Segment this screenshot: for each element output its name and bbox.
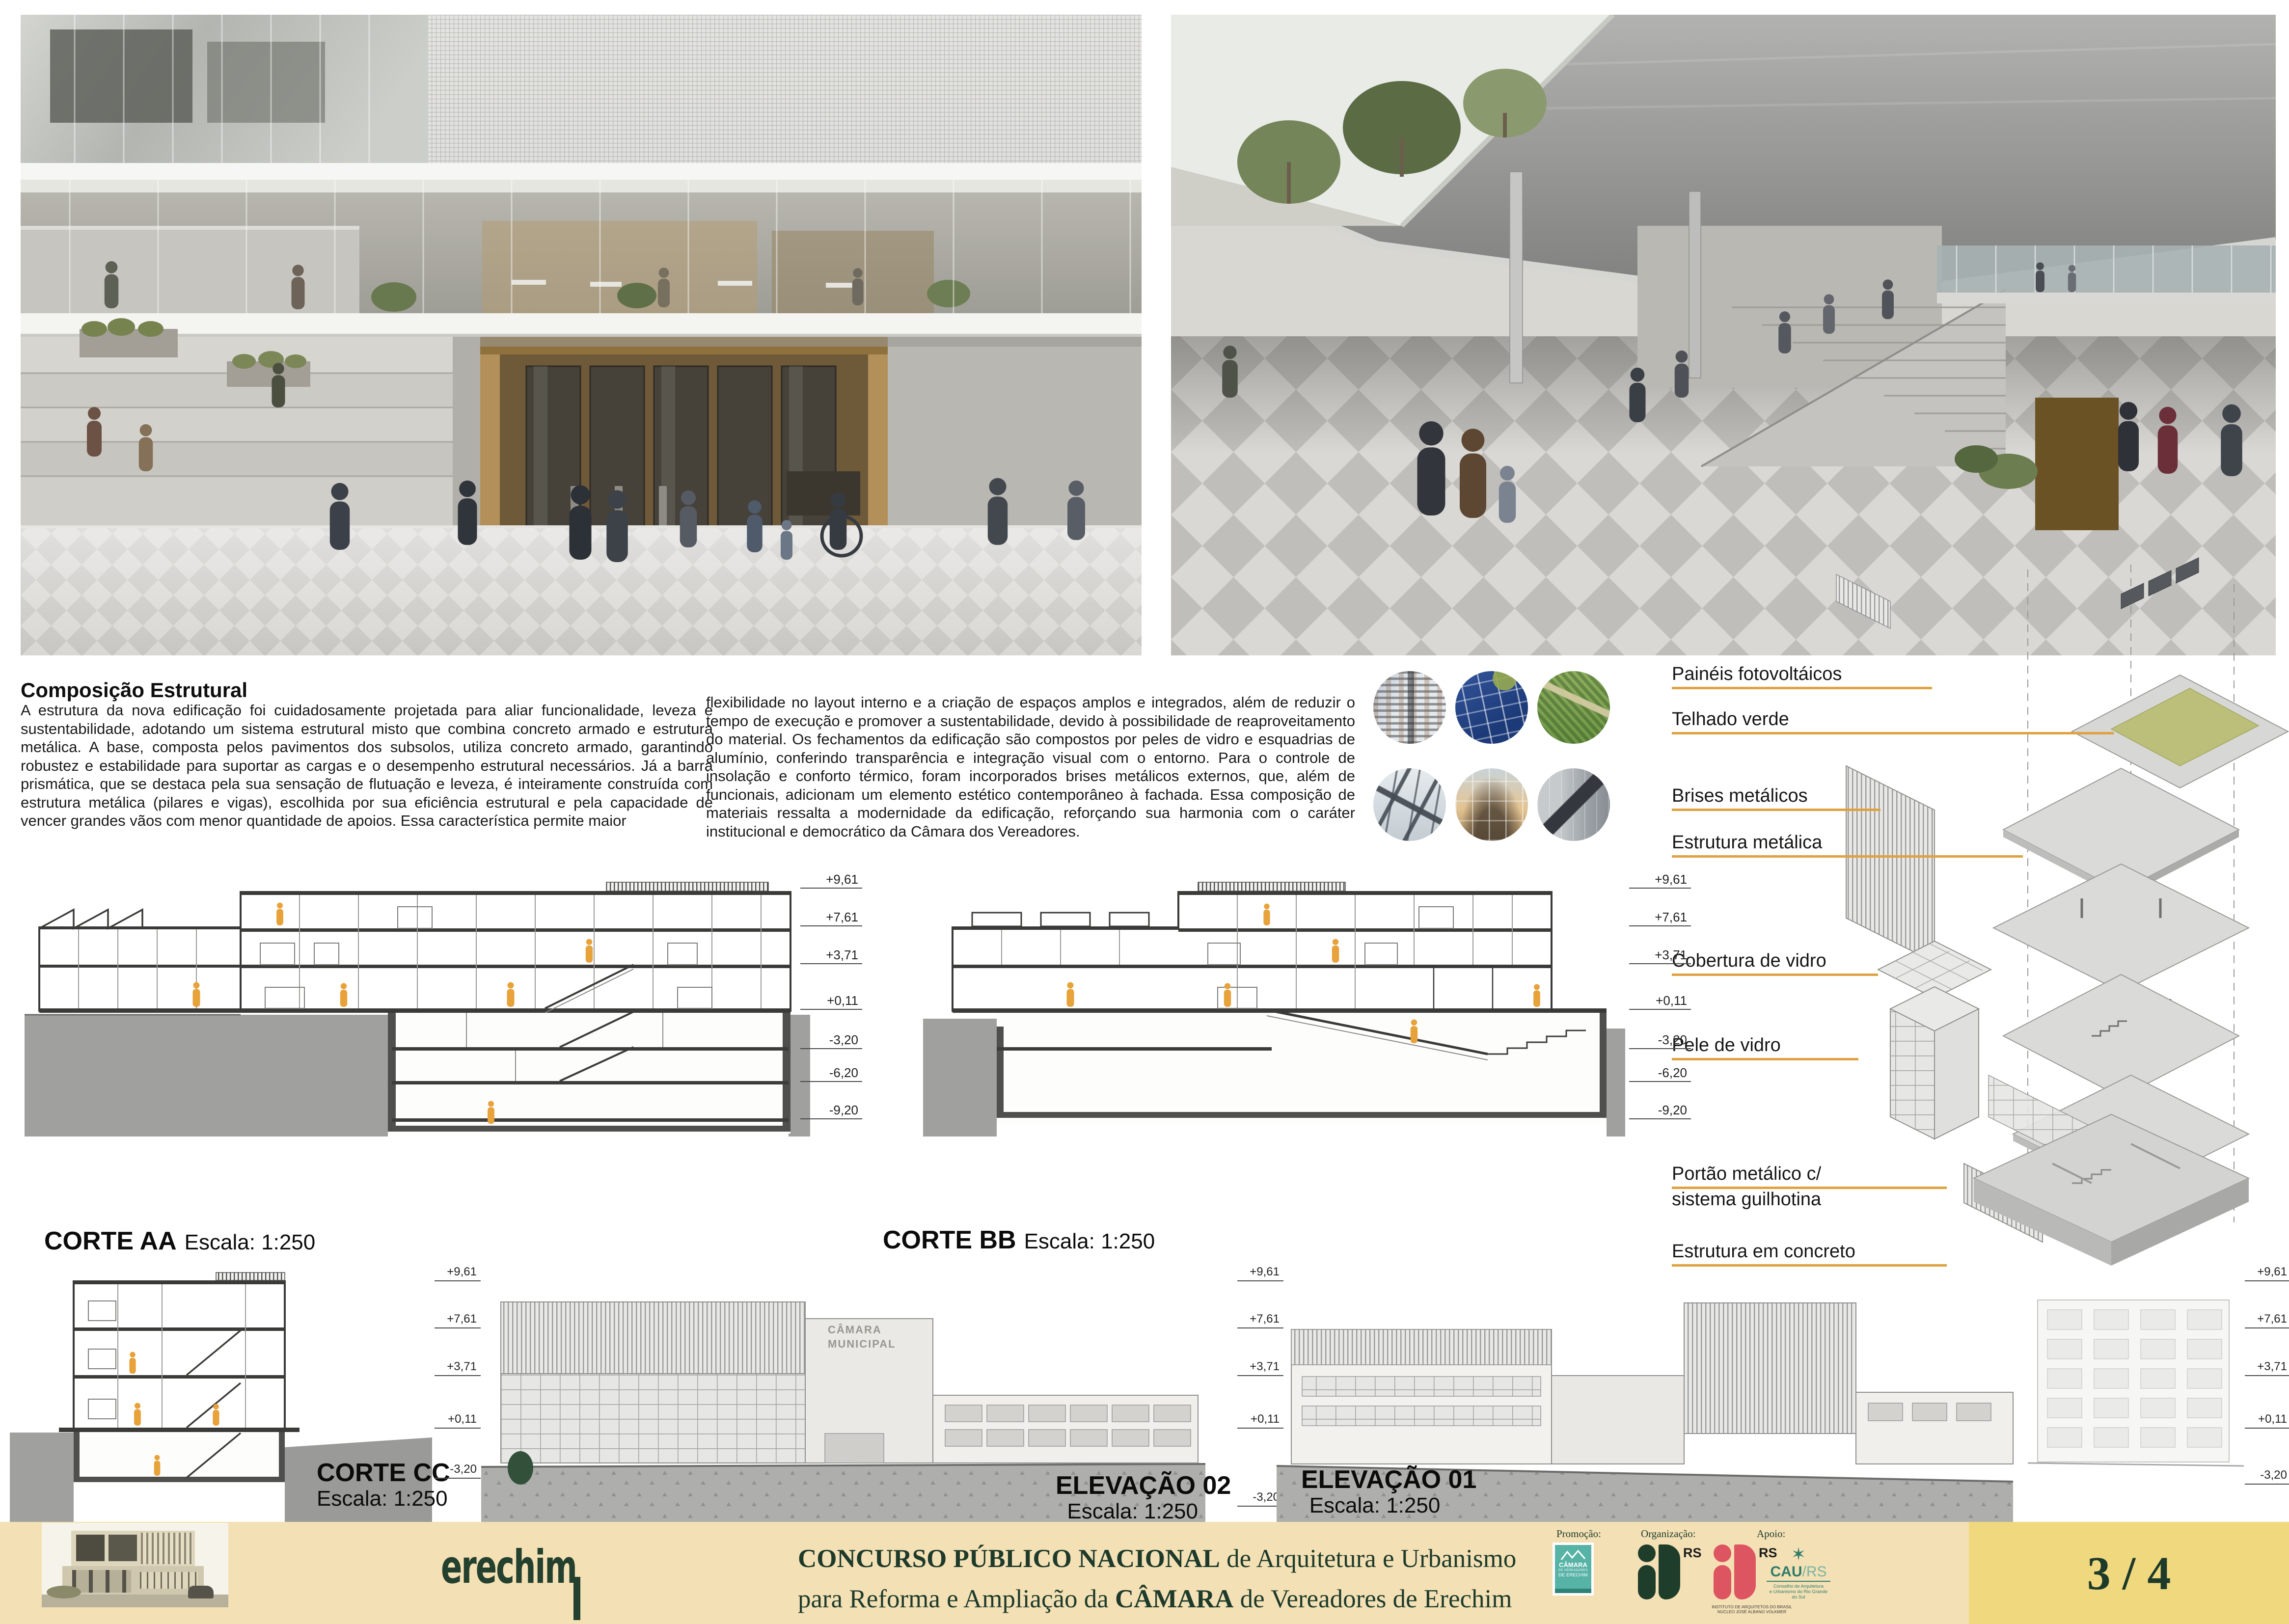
level-mark: -9,20: [1629, 1103, 1691, 1119]
level-mark: +9,61: [435, 1265, 481, 1281]
competition-title: CONCURSO PÚBLICO NACIONAL de Arquitetura…: [798, 1539, 1516, 1619]
axon-label-telhado: Telhado verde: [1672, 709, 2114, 734]
iab-bowl: [1659, 1544, 1680, 1599]
level-mark: +3,71: [2245, 1359, 2289, 1376]
axon-label-text: sistema guilhotina: [1672, 1189, 1947, 1210]
material-photo-metal-mesh-icon: [1373, 671, 1446, 744]
material-photo-concrete-structure-icon: [1537, 768, 1610, 841]
photo-vintage-car: [188, 1586, 214, 1598]
level-mark: +7,61: [800, 910, 862, 926]
material-photo-green-roof-icon: [1537, 671, 1610, 744]
essay-column-1: A estrutura da nova edificação foi cuida…: [21, 701, 713, 830]
competition-board: Composição Estrutural A estrutura da nov…: [0, 0, 2289, 1624]
level-mark: +0,11: [800, 993, 862, 1010]
level-mark: -3,20: [2245, 1468, 2289, 1485]
level-mark: +9,61: [1629, 872, 1691, 889]
mountains-icon: [1559, 1549, 1587, 1561]
corte-aa-title: CORTE AA: [44, 1227, 177, 1255]
material-photo-glass-facade-icon: [1455, 768, 1528, 841]
cau-name: CAU/RS: [1767, 1564, 1830, 1582]
level-mark: -3,20: [800, 1032, 862, 1049]
axon-label-estrutura-metalica: Estrutura metálica: [1672, 832, 2023, 858]
iab-subtitle: INSTITUTO DE ARQUITETOS DO BRASIL NÚCLEO…: [1703, 1604, 1801, 1614]
camara-logo-line2: DE VEREADORES: [1555, 1569, 1591, 1572]
level-mark: -6,20: [1629, 1065, 1691, 1082]
mesh-mullion: [1408, 671, 1414, 744]
corte-cc-label: CORTE CC Escala: 1:250: [317, 1459, 439, 1511]
iab-stem: [1638, 1565, 1656, 1599]
camara-logo-strip: [1555, 1589, 1591, 1593]
photo-fins: [141, 1533, 192, 1564]
photo-vegetation: [47, 1586, 81, 1598]
material-photo-solar-panels-icon: [1455, 671, 1528, 744]
elevacao-02-title: ELEVAÇÃO 02: [1056, 1472, 1198, 1499]
iab-dot: [1638, 1544, 1656, 1562]
corte-cc-scale: Escala: 1:250: [317, 1487, 439, 1511]
camara-logo-line3: DE ERECHIM: [1555, 1572, 1591, 1578]
competition-title-line2: para Reforma e Ampliação da CÂMARA de Ve…: [798, 1579, 1516, 1619]
level-mark: -3,20: [435, 1462, 481, 1479]
level-mark: +3,71: [800, 947, 862, 964]
apoio-label: Apoio:: [1757, 1528, 1785, 1540]
axon-label-text: Portão metálico c/: [1672, 1164, 1947, 1184]
leader-line: [1672, 809, 1880, 811]
leader-line: [1672, 1058, 1858, 1060]
corte-aa-drawing: [25, 881, 810, 1228]
axon-label-text: Estrutura metálica: [1672, 832, 2023, 853]
iab-bowl: [1734, 1544, 1756, 1599]
org-label: Organização:: [1641, 1528, 1696, 1540]
iab-dot: [1714, 1544, 1731, 1562]
leader-line: [1672, 1264, 1947, 1267]
axon-label-text: Brises metálicos: [1672, 785, 1880, 806]
level-mark: +0,11: [1629, 993, 1691, 1010]
photo-ribbon-windows: [140, 1572, 198, 1589]
render-entrance-view: [21, 15, 1142, 655]
axon-label-paineis: Painéis fotovoltáicos: [1672, 664, 1932, 689]
axon-label-portao: Portão metálico c/ sistema guilhotina: [1672, 1164, 1947, 1210]
axon-label-concreto: Estrutura em concreto: [1672, 1241, 1947, 1267]
page-number: 3 / 4: [2087, 1546, 2171, 1600]
essay-heading: Composição Estrutural: [21, 678, 247, 702]
leader-line: [1672, 687, 1932, 689]
axon-label-brises: Brises metálicos: [1672, 785, 1880, 811]
iab-rs-text: RS: [1683, 1545, 1702, 1561]
axon-label-text: Painéis fotovoltáicos: [1672, 664, 1932, 684]
corte-bb-scale: Escala: 1:250: [1024, 1229, 1155, 1253]
level-mark: +0,11: [435, 1412, 481, 1429]
corte-aa-label: CORTE AAEscala: 1:250: [44, 1226, 315, 1256]
level-mark: +7,61: [435, 1312, 481, 1328]
page-number-box: 3 / 4: [1969, 1522, 2289, 1624]
elevacao-01-title: ELEVAÇÃO 01: [1301, 1466, 1448, 1493]
corte-cc-title: CORTE CC: [317, 1459, 439, 1487]
camara-erechim-logo-inner: CÂMARA DE VEREADORES DE ERECHIM: [1555, 1545, 1591, 1593]
erechim-logo-descender: [573, 1577, 580, 1620]
axon-label-text: Cobertura de vidro: [1672, 950, 1878, 971]
level-mark: -9,20: [800, 1103, 862, 1119]
elevacao-01-label: ELEVAÇÃO 01 Escala: 1:250: [1301, 1466, 1448, 1518]
level-mark: -3,20: [1629, 1032, 1691, 1049]
neighbor-building-elevation: [2028, 1275, 2244, 1496]
facade-sign-camara-municipal: CÂMARA MUNICIPAL: [828, 1323, 896, 1351]
photo-pilotis: [72, 1570, 131, 1593]
essay-column-2: flexibilidade no layout interno e a cria…: [706, 693, 1355, 840]
level-mark: -6,20: [800, 1065, 862, 1082]
cau-rs-logo: ✶ CAU/RS Conselho de Arquitetura e Urban…: [1767, 1544, 1830, 1600]
photo-window: [109, 1535, 137, 1561]
corte-bb-label: CORTE BBEscala: 1:250: [883, 1225, 1155, 1255]
iab-rs-red-logo: RS: [1714, 1544, 1763, 1599]
leader-line: [1672, 855, 2023, 858]
promo-label: Promoção:: [1556, 1528, 1601, 1540]
elevacao-01-scale: Escala: 1:250: [1301, 1493, 1448, 1518]
level-mark: +9,61: [800, 872, 862, 889]
erechim-logo: erechim: [441, 1541, 576, 1594]
photo-window: [76, 1535, 105, 1561]
level-mark: +7,61: [2245, 1312, 2289, 1328]
axon-label-text: Estrutura em concreto: [1672, 1241, 1947, 1262]
axon-label-text: Pele de vidro: [1672, 1035, 1858, 1056]
level-mark: +3,71: [435, 1359, 481, 1376]
level-mark: +0,11: [2245, 1412, 2289, 1429]
iab-stem: [1714, 1565, 1731, 1599]
level-mark: +7,61: [1629, 910, 1691, 926]
level-mark: +9,61: [2245, 1265, 2289, 1281]
material-photo-steel-glass-roof-icon: [1373, 768, 1446, 841]
corte-bb-drawing: [923, 881, 1625, 1228]
corte-aa-scale: Escala: 1:250: [185, 1230, 316, 1254]
elevacao-02-label: ELEVAÇÃO 02 Escala: 1:250: [1056, 1472, 1198, 1524]
cau-subtitle: Conselho de Arquitetura e Urbanismo do R…: [1767, 1584, 1830, 1600]
exploded-axonometric-diagram: [1817, 555, 2289, 1267]
corte-bb-title: CORTE BB: [883, 1226, 1016, 1254]
star-icon: ✶: [1767, 1544, 1830, 1564]
camara-logo-line1: CÂMARA: [1555, 1562, 1591, 1569]
camara-erechim-logo: CÂMARA DE VEREADORES DE ERECHIM: [1553, 1543, 1594, 1596]
competition-title-line1: CONCURSO PÚBLICO NACIONAL de Arquitetura…: [798, 1539, 1516, 1579]
iab-rs-green-logo: RS: [1638, 1544, 1687, 1599]
leader-line: [1672, 732, 2114, 734]
leader-line: [1672, 974, 1878, 976]
level-mark: +3,71: [1629, 947, 1691, 964]
historic-camara-photo: [42, 1523, 228, 1607]
elevacao-02-scale: Escala: 1:250: [1056, 1499, 1198, 1524]
axon-label-text: Telhado verde: [1672, 709, 2114, 730]
axon-label-cobertura: Cobertura de vidro: [1672, 950, 1878, 976]
axon-label-pele-vidro: Pele de vidro: [1672, 1035, 1858, 1060]
